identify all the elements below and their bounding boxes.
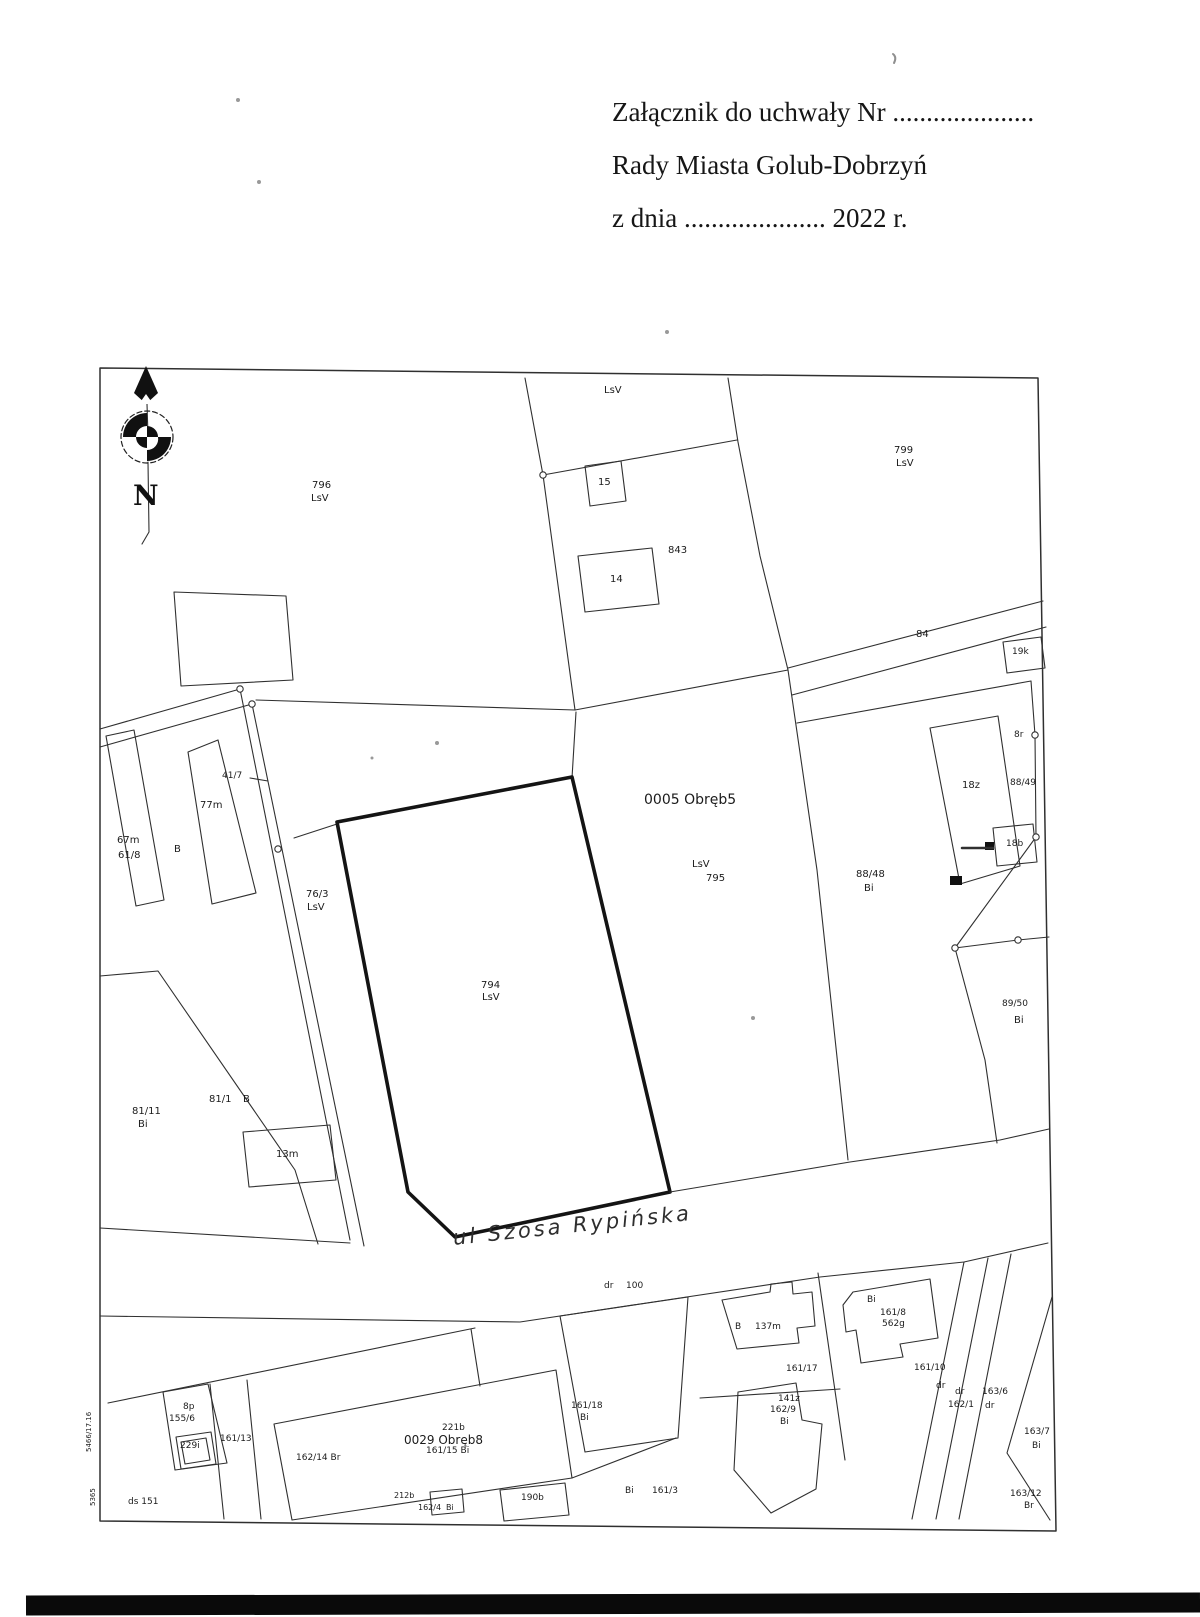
parcel-label: 161/15 Bi [426, 1447, 469, 1456]
parcel-label: Bi [625, 1487, 634, 1496]
handwritten-street-name: ul Szosa Rypińska [452, 1203, 693, 1249]
scan-artifact-bar [26, 1592, 1200, 1615]
parcel-label: 41/7 [222, 772, 242, 781]
parcel-label: 81/1 [209, 1095, 231, 1105]
parcel-label: B [243, 1095, 250, 1105]
parcel-label: 81/11 [132, 1107, 161, 1117]
parcel-label: B [174, 845, 181, 855]
parcel-label: 18z [962, 781, 980, 791]
map-labels: 796LsVLsV1514843799LsV8419k8r88/4918z18b… [0, 0, 1200, 1617]
parcel-label: 161/18 [571, 1402, 603, 1411]
parcel-label: Bi [780, 1418, 789, 1427]
parcel-label: 161/10 [914, 1364, 946, 1373]
parcel-label: dr [604, 1282, 613, 1291]
parcel-label: 162/14 Br [296, 1454, 340, 1463]
parcel-label: 163/6 [982, 1388, 1008, 1397]
parcel-label: 162/1 [948, 1401, 974, 1410]
parcel-label: 162/4 [418, 1504, 441, 1512]
parcel-label: 77m [200, 801, 222, 811]
parcel-label: 5466/17.16 [86, 1412, 93, 1452]
parcel-label: 0005 Obręb5 [644, 793, 736, 807]
parcel-label: 100 [626, 1282, 643, 1291]
parcel-label: 562g [882, 1320, 905, 1329]
parcel-label: Bi [138, 1120, 148, 1130]
parcel-label: 161/17 [786, 1365, 818, 1374]
parcel-label: 13m [276, 1150, 298, 1160]
parcel-label: dr [936, 1382, 945, 1391]
parcel-label: 19k [1012, 648, 1029, 657]
parcel-label: 796 [312, 481, 331, 491]
parcel-label: 8p [183, 1403, 194, 1412]
parcel-label: 76/3 [306, 890, 328, 900]
parcel-label: LsV [482, 993, 500, 1003]
parcel-label: Bi [864, 884, 874, 894]
parcel-label: 162/9 [770, 1406, 796, 1415]
parcel-label: 137m [755, 1323, 781, 1332]
parcel-label: 161/3 [652, 1487, 678, 1496]
parcel-label: 84 [916, 630, 929, 640]
parcel-label: 163/12 [1010, 1490, 1042, 1499]
parcel-label: 155/6 [169, 1415, 195, 1424]
parcel-label: 88/48 [856, 870, 885, 880]
scanned-page: Załącznik do uchwały Nr ................… [0, 0, 1200, 1617]
parcel-label: Bi [1032, 1442, 1041, 1451]
parcel-label: Bi [446, 1504, 454, 1512]
parcel-label: LsV [307, 903, 325, 913]
parcel-label: 794 [481, 981, 500, 991]
parcel-label: 0029 Obręb8 [404, 1434, 483, 1446]
parcel-label: 161/8 [880, 1309, 906, 1318]
parcel-label: 88/49 [1010, 779, 1036, 788]
parcel-label: 61/8 [118, 851, 140, 861]
parcel-label: LsV [604, 386, 622, 396]
parcel-label: 67m [117, 836, 139, 846]
parcel-label: Bi [867, 1296, 876, 1305]
parcel-label: LsV [896, 459, 914, 469]
parcel-label: B [735, 1323, 741, 1332]
parcel-label: 163/7 [1024, 1428, 1050, 1437]
parcel-label: Bi [1014, 1016, 1024, 1026]
parcel-label: 190b [521, 1494, 544, 1503]
parcel-label: 221b [442, 1424, 465, 1433]
parcel-label: 14 [610, 575, 623, 585]
parcel-label: LsV [692, 860, 710, 870]
parcel-label: dr [985, 1402, 994, 1411]
parcel-label: dr [955, 1388, 964, 1397]
parcel-label: 212b [394, 1492, 414, 1500]
parcel-label: 795 [706, 874, 725, 884]
parcel-label: 141z [778, 1395, 800, 1404]
parcel-label: 229i [180, 1442, 200, 1451]
parcel-label: Br [1024, 1502, 1034, 1511]
parcel-label: 8r [1014, 731, 1023, 740]
parcel-label: ds 151 [128, 1498, 158, 1507]
parcel-label: 5365 [90, 1488, 97, 1506]
parcel-label: 161/13 [220, 1435, 252, 1444]
parcel-label: 799 [894, 446, 913, 456]
parcel-label: 843 [668, 546, 687, 556]
parcel-label: 15 [598, 478, 611, 488]
parcel-label: Bi [580, 1414, 589, 1423]
parcel-label: 89/50 [1002, 1000, 1028, 1009]
parcel-label: LsV [311, 494, 329, 504]
parcel-label: 18b [1006, 840, 1023, 849]
